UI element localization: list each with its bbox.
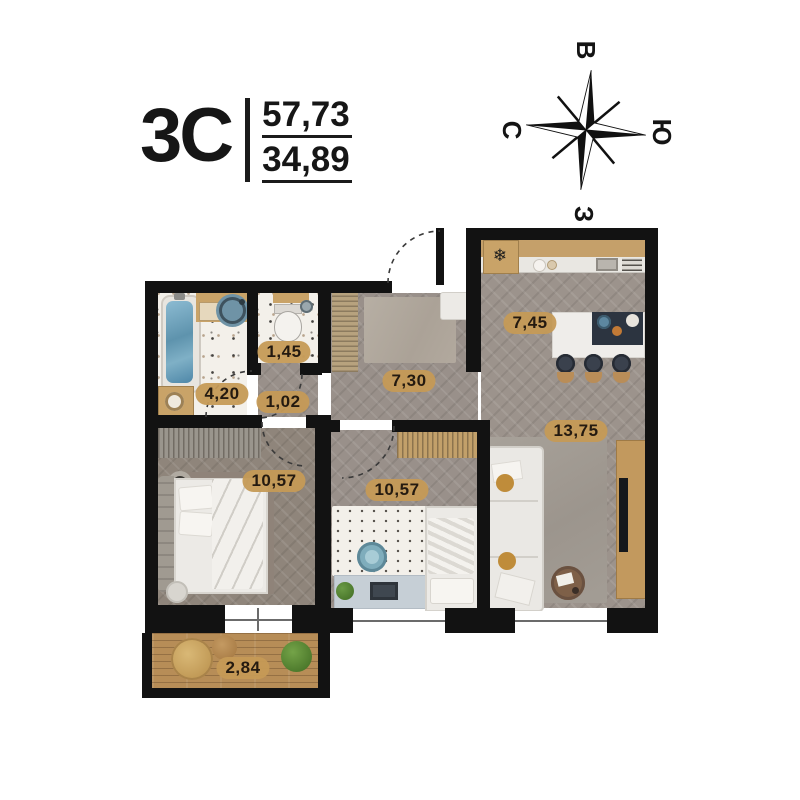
wc-sink: [300, 300, 313, 313]
hall-wardrobe: [332, 292, 358, 372]
bathtub-water: [166, 301, 193, 383]
balcony-wall: [318, 633, 330, 698]
wall: [292, 605, 331, 633]
area-label-wc: 1,45: [257, 341, 310, 363]
bedroom-closet: [158, 428, 261, 458]
sofa-cushion-line: [488, 500, 538, 502]
living-room-window: [515, 611, 607, 630]
counter-bowl: [547, 260, 557, 270]
area-label-niche: 1,02: [256, 391, 309, 413]
mustard-pillow: [498, 552, 516, 570]
mustard-pillow: [496, 474, 514, 492]
entrance-door-leaf: [436, 228, 444, 285]
second-room-window: [353, 611, 445, 630]
balcony-plant: [281, 641, 312, 672]
bed-headboard: [158, 476, 174, 592]
area-label-bathroom: 4,20: [195, 383, 248, 405]
wall: [645, 228, 658, 633]
laptop: [370, 582, 398, 600]
wall: [145, 281, 392, 293]
duvet: [212, 479, 263, 589]
balcony-pouf-large: [171, 638, 213, 680]
pillow: [178, 485, 214, 512]
wall: [145, 605, 225, 633]
wall: [300, 363, 322, 375]
floor-plan: ❄: [0, 0, 800, 800]
entrance-door-arc: [388, 231, 440, 283]
kitchen-sink: [596, 258, 618, 271]
wall: [247, 363, 261, 375]
area-label-kitchen: 7,45: [503, 312, 556, 334]
area-label-hallway: 7,30: [382, 370, 435, 392]
counter-plate: [533, 259, 546, 272]
sink-tap-icon: [239, 299, 245, 305]
second-room-closet: [397, 428, 478, 458]
bar-stool: [612, 354, 631, 373]
blue-bowl: [597, 315, 611, 329]
balcony-wall: [142, 688, 330, 698]
wall: [477, 420, 490, 608]
area-label-bedroom: 10,57: [242, 470, 305, 492]
bar-stool: [556, 354, 575, 373]
wall: [247, 281, 258, 373]
bar-stool: [584, 354, 603, 373]
wall: [318, 281, 331, 373]
wall: [331, 608, 353, 633]
wall: [466, 228, 658, 240]
cooktop: [622, 258, 642, 271]
bath-faucet-icon: [174, 293, 185, 300]
orange-fruit: [612, 326, 622, 336]
floorplan-page: 3С 57,73 34,89 В С Ю З: [0, 0, 800, 800]
toilet-bowl: [274, 311, 302, 342]
bedroom-window: [225, 608, 292, 631]
tv-screen: [619, 478, 628, 552]
bed-pillow: [430, 578, 474, 604]
wall: [445, 608, 515, 633]
wall: [145, 415, 262, 428]
coffee-cup: [572, 587, 579, 594]
wall: [331, 420, 340, 432]
desk-plant: [336, 582, 354, 600]
wall: [392, 420, 478, 432]
area-label-living-room: 13,75: [544, 420, 607, 442]
fridge-snowflake-icon: ❄: [493, 246, 507, 266]
wall: [145, 281, 158, 633]
area-label-second-room: 10,57: [365, 479, 428, 501]
wall: [466, 240, 481, 372]
fruit-plate: [626, 314, 639, 327]
striped-blanket: [428, 518, 474, 574]
bedroom-pouf: [166, 581, 188, 603]
wall: [315, 415, 331, 605]
washer-door-icon: [165, 392, 184, 411]
pillow: [178, 511, 214, 537]
armchair-seat: [365, 550, 379, 564]
area-label-balcony: 2,84: [216, 657, 269, 679]
